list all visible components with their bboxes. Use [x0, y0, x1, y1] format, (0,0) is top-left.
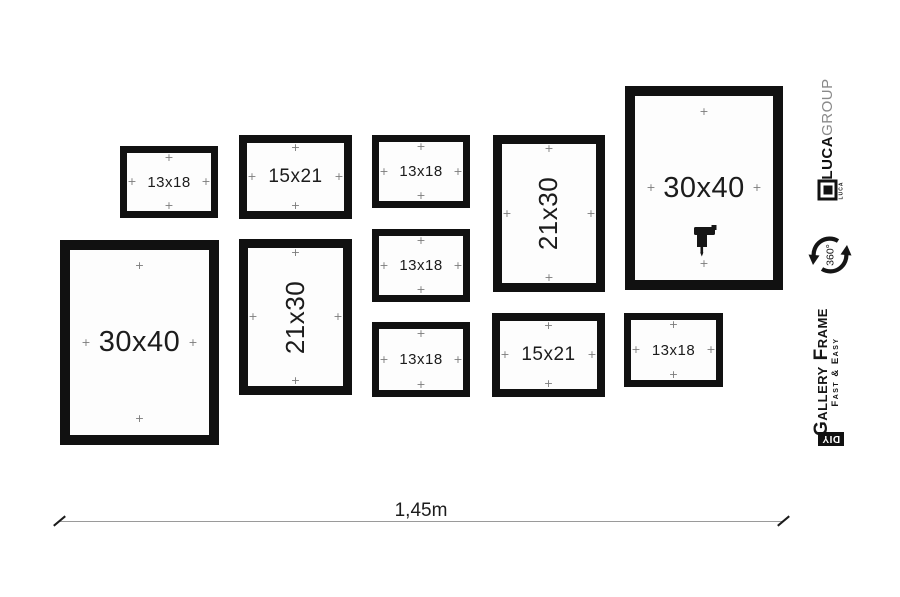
rotation-360-icon: 360° [806, 231, 854, 279]
hanging-point-icon: + [416, 380, 426, 390]
frame-size-label: 30x40 [99, 326, 181, 359]
hanging-point-icon: + [333, 312, 343, 322]
hanging-point-icon: + [416, 285, 426, 295]
frame-size-label: 13x18 [652, 342, 695, 359]
frame-size-label: 13x18 [399, 351, 442, 368]
frame-21x30: 21x30 ++++ [239, 239, 352, 395]
hanging-point-icon: + [544, 273, 554, 283]
hanging-point-icon: + [669, 370, 679, 380]
brand-wordmark-light: GROUP [819, 78, 836, 136]
hanging-point-icon: + [291, 376, 301, 386]
hanging-point-icon: + [164, 153, 174, 163]
hanging-point-icon: + [502, 209, 512, 219]
hanging-point-icon: + [453, 355, 463, 365]
frame-13x18: 13x18 ++++ [120, 146, 218, 218]
rotation-360-label: 360° [825, 244, 837, 266]
luca-logo-fill [823, 186, 832, 195]
dimension-label: 1,45m [371, 500, 471, 522]
product-lockup: Gallery Frame Fast & Easy [811, 297, 841, 447]
hanging-point-icon: + [669, 320, 679, 330]
hanging-point-icon: + [291, 248, 301, 258]
hanging-point-icon: + [544, 321, 554, 331]
frame-21x30: 21x30 ++++ [493, 135, 605, 292]
hanging-point-icon: + [587, 350, 597, 360]
luca-logo-text: LUCA [839, 182, 845, 200]
hanging-point-icon: + [646, 183, 656, 193]
hanging-point-icon: + [699, 259, 709, 269]
frame-30x40: 30x40 ++++ [625, 86, 783, 290]
hanging-point-icon: + [135, 414, 145, 424]
hanging-point-icon: + [379, 355, 389, 365]
brand-wordmark-bold: LUCA [819, 136, 836, 180]
frame-size-label: 13x18 [399, 163, 442, 180]
hanging-point-icon: + [247, 172, 257, 182]
hanging-point-icon: + [135, 261, 145, 271]
hanging-point-icon: + [164, 201, 174, 211]
hanging-point-icon: + [334, 172, 344, 182]
product-tagline: Fast & Easy [831, 337, 840, 406]
hanging-point-icon: + [706, 345, 716, 355]
frame-size-label: 30x40 [663, 172, 745, 205]
hanging-point-icon: + [544, 379, 554, 389]
hanging-point-icon: + [188, 338, 198, 348]
hanging-point-icon: + [291, 143, 301, 153]
frame-size-label: 13x18 [399, 257, 442, 274]
frame-13x18: 13x18 ++++ [372, 135, 470, 208]
frame-size-label: 15x21 [521, 344, 575, 366]
frame-size-label: 15x21 [268, 166, 322, 188]
gallery-wall-diagram: 13x18 ++++ 15x21 ++++ 13x18 ++++ 21x30 +… [0, 0, 900, 597]
frame-size-label: 21x30 [280, 280, 311, 353]
product-name: Gallery Frame [813, 308, 831, 436]
hanging-point-icon: + [291, 201, 301, 211]
frame-13x18: 13x18 ++++ [372, 229, 470, 302]
frame-size-label: 13x18 [147, 174, 190, 191]
hanging-point-icon: + [544, 144, 554, 154]
hanging-point-icon: + [201, 177, 211, 187]
hanging-point-icon: + [416, 142, 426, 152]
diy-badge: DIY [818, 432, 844, 446]
hanging-point-icon: + [453, 167, 463, 177]
hanging-point-icon: + [631, 345, 641, 355]
hanging-point-icon: + [699, 107, 709, 117]
hanging-point-icon: + [248, 312, 258, 322]
frame-13x18: 13x18 ++++ [372, 322, 470, 397]
hanging-point-icon: + [379, 261, 389, 271]
hanging-point-icon: + [127, 177, 137, 187]
frame-size-label: 21x30 [534, 177, 565, 250]
drill-icon [693, 225, 717, 257]
hanging-point-icon: + [416, 329, 426, 339]
brand-wordmark: LUCAGROUP [818, 69, 836, 189]
hanging-point-icon: + [379, 167, 389, 177]
hanging-point-icon: + [81, 338, 91, 348]
hanging-point-icon: + [500, 350, 510, 360]
hanging-point-icon: + [416, 191, 426, 201]
hanging-point-icon: + [752, 183, 762, 193]
frame-15x21: 15x21 ++++ [492, 313, 605, 397]
hanging-point-icon: + [416, 236, 426, 246]
hanging-point-icon: + [586, 209, 596, 219]
frame-13x18: 13x18 ++++ [624, 313, 723, 387]
luca-logo-square [818, 180, 838, 201]
frame-30x40: 30x40 ++++ [60, 240, 219, 445]
hanging-point-icon: + [453, 261, 463, 271]
frame-15x21: 15x21 ++++ [239, 135, 352, 219]
luca-logo: LUCA [818, 179, 845, 203]
